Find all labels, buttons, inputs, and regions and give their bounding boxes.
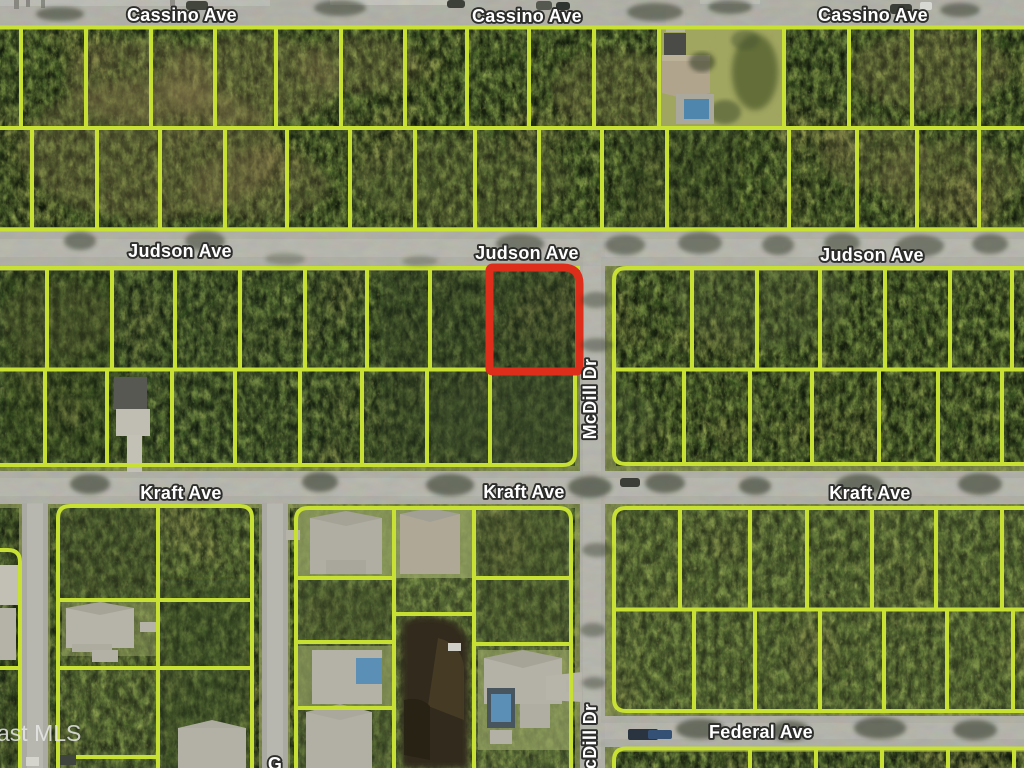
svg-text:Judson Ave: Judson Ave	[820, 245, 924, 265]
svg-text:McDill Dr: McDill Dr	[580, 704, 600, 768]
svg-text:Kraft Ave: Kraft Ave	[829, 483, 910, 503]
svg-text:Cassino Ave: Cassino Ave	[818, 5, 928, 25]
svg-text:Cassino Ave: Cassino Ave	[472, 6, 582, 26]
svg-text:ast MLS: ast MLS	[0, 720, 81, 746]
svg-text:McDill Dr: McDill Dr	[580, 359, 600, 440]
svg-text:Kraft Ave: Kraft Ave	[483, 482, 564, 502]
svg-text:Federal Ave: Federal Ave	[709, 722, 813, 742]
svg-text:Judson Ave: Judson Ave	[475, 243, 579, 263]
svg-text:Kraft Ave: Kraft Ave	[140, 483, 221, 503]
svg-text:G: G	[268, 754, 282, 768]
svg-text:Cassino Ave: Cassino Ave	[127, 5, 237, 25]
svg-text:Judson Ave: Judson Ave	[128, 241, 232, 261]
